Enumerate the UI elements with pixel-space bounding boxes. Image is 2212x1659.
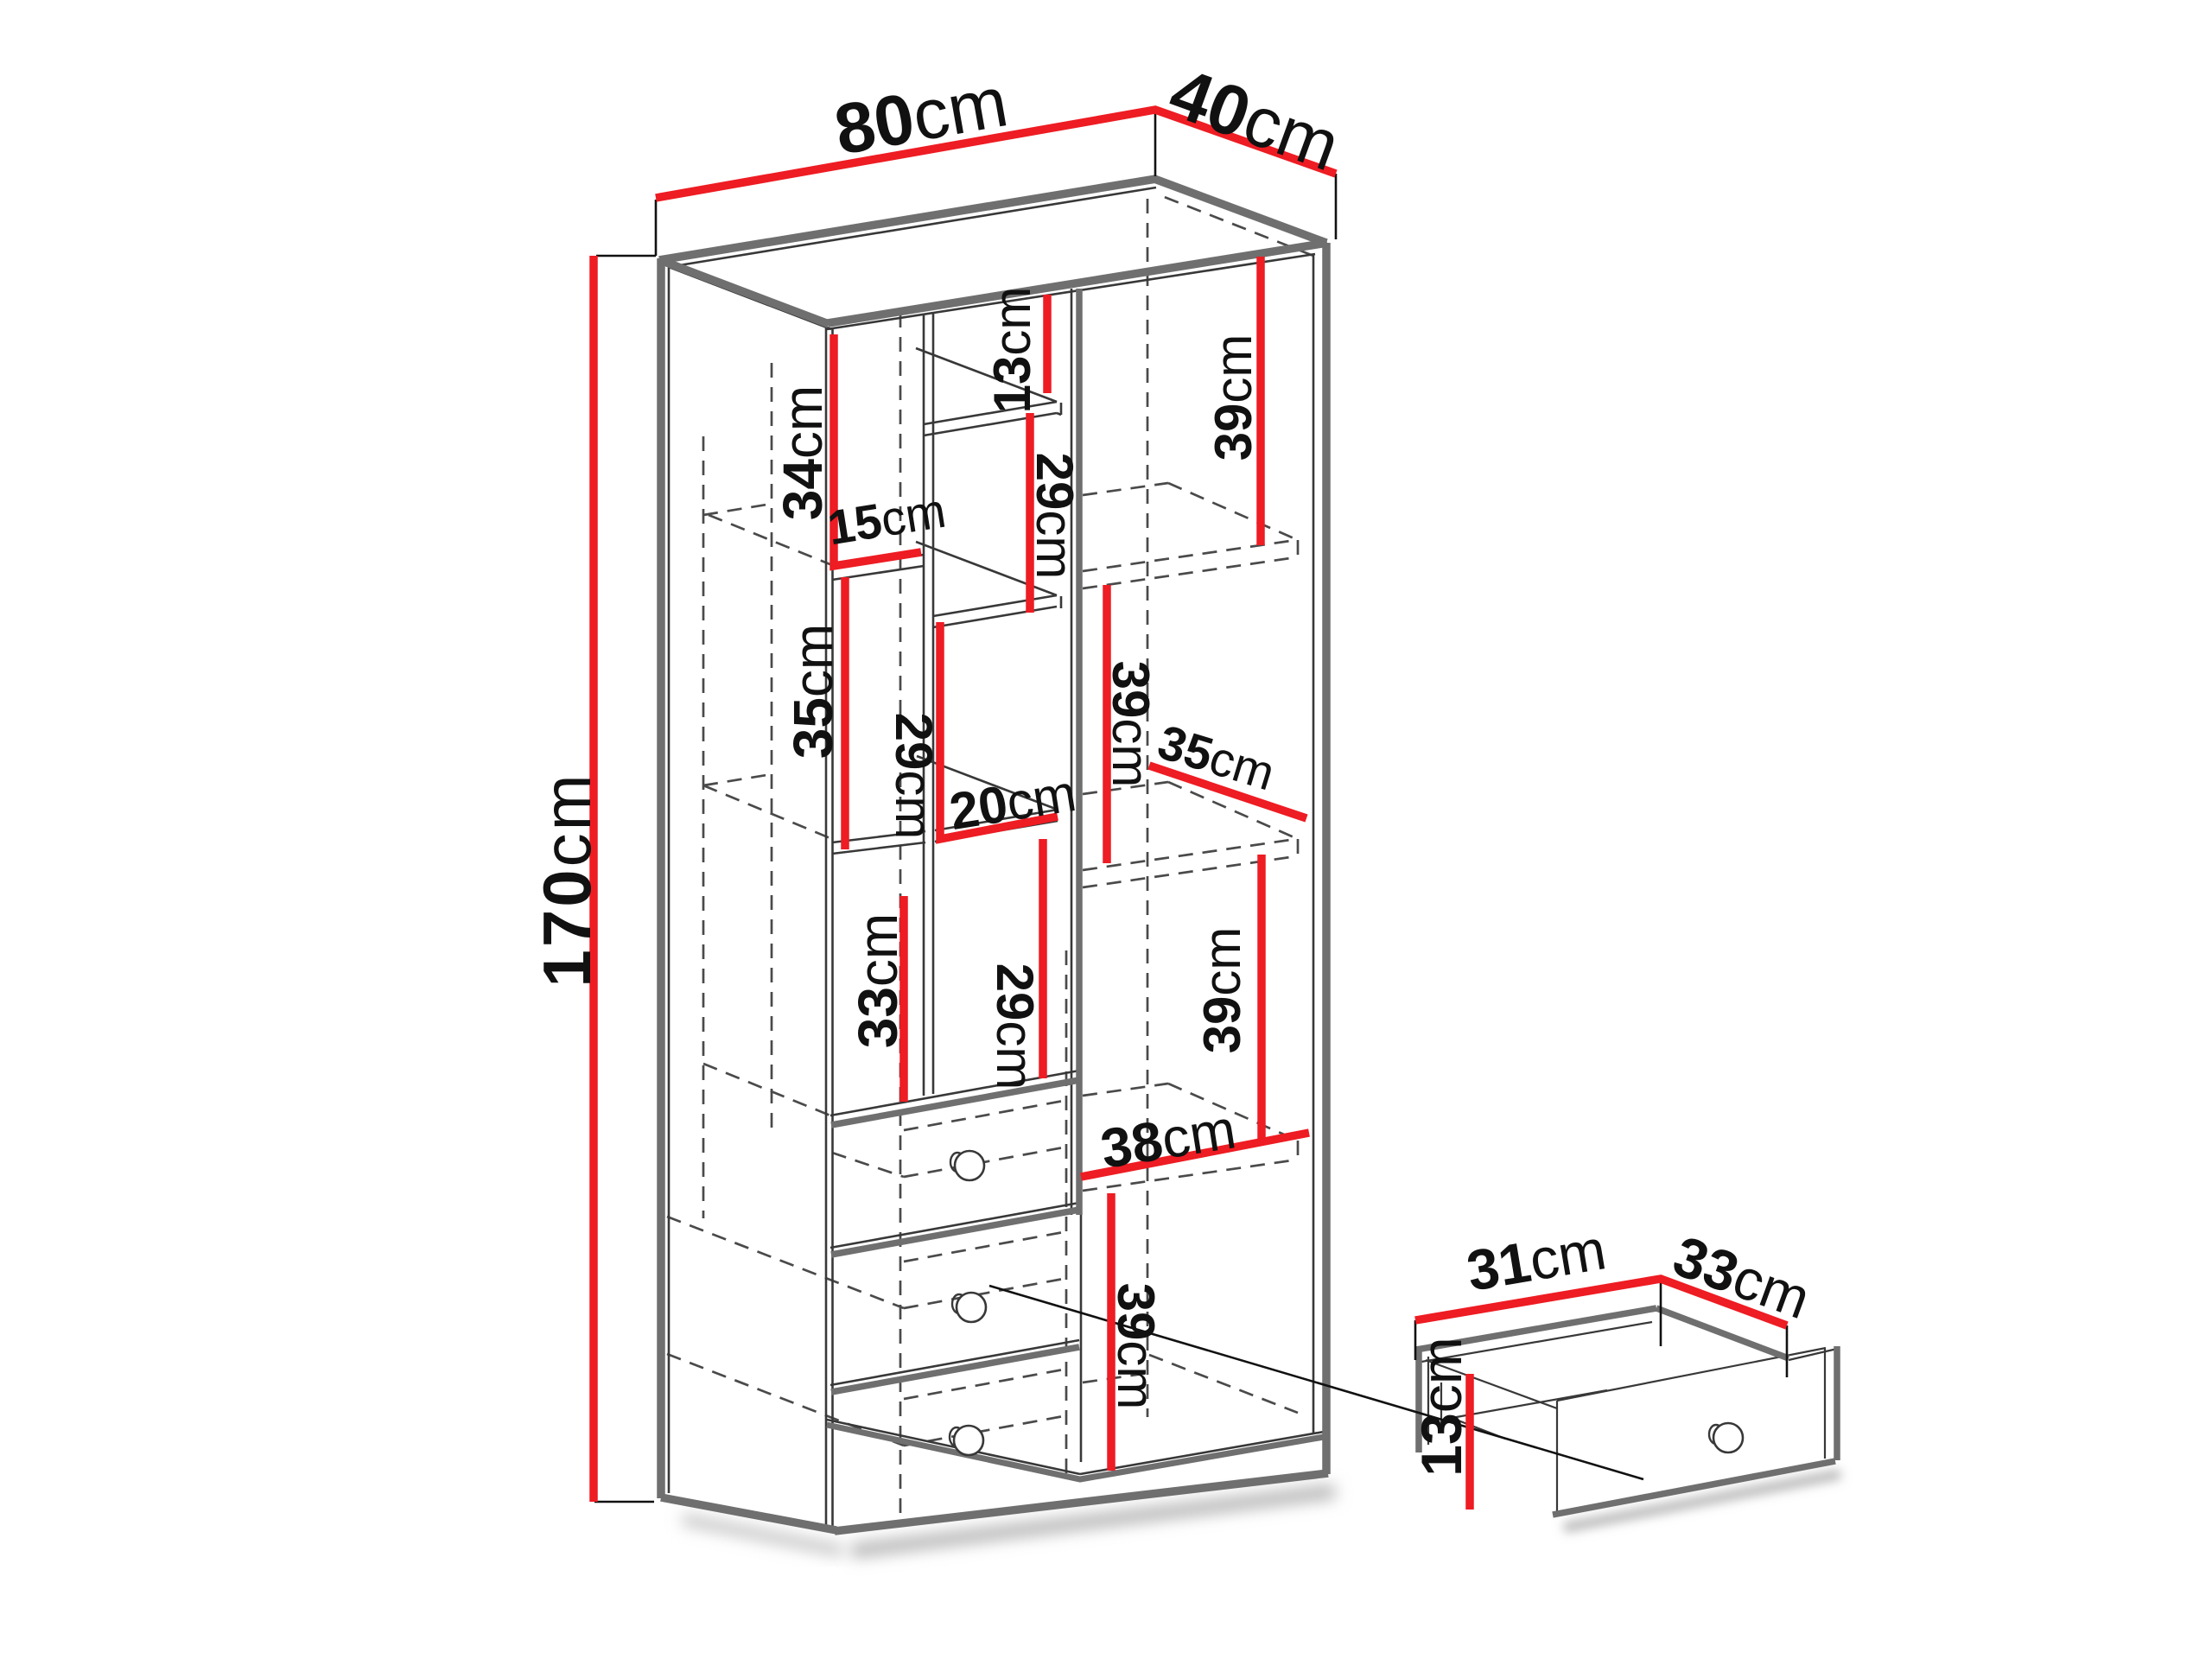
- svg-text:33cm: 33cm: [847, 913, 909, 1049]
- svg-text:170cm: 170cm: [529, 772, 605, 987]
- svg-text:39cm: 39cm: [1193, 927, 1251, 1054]
- svg-text:80cm: 80cm: [829, 62, 1013, 169]
- svg-text:15cm: 15cm: [823, 482, 949, 555]
- svg-text:29cm: 29cm: [1027, 453, 1084, 580]
- svg-text:35cm: 35cm: [782, 624, 844, 760]
- svg-text:29cm: 29cm: [987, 963, 1045, 1090]
- svg-text:13cm: 13cm: [1409, 1337, 1473, 1476]
- svg-text:40cm: 40cm: [1160, 53, 1350, 186]
- svg-text:33cm: 33cm: [1666, 1224, 1819, 1332]
- svg-text:39cm: 39cm: [1108, 1283, 1166, 1410]
- svg-text:39cm: 39cm: [1205, 334, 1262, 461]
- svg-text:13cm: 13cm: [983, 287, 1041, 414]
- svg-text:39cm: 39cm: [1103, 661, 1160, 788]
- svg-text:38cm: 38cm: [1096, 1097, 1240, 1180]
- svg-text:29cm: 29cm: [886, 713, 944, 840]
